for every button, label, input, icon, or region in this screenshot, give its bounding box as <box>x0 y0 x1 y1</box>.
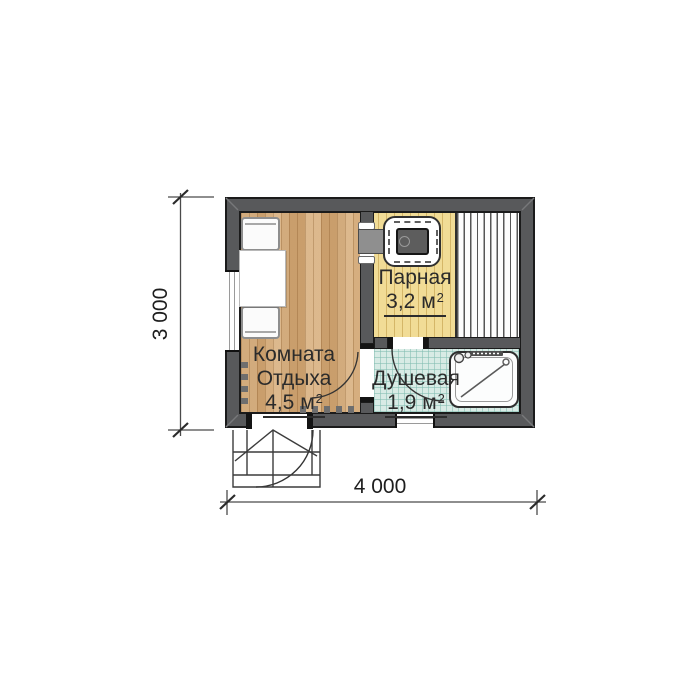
stove-vent-dashes <box>388 230 390 254</box>
dimension-width-label: 4 000 <box>330 476 430 498</box>
door-jamb <box>423 337 428 349</box>
square-superscript: 2 <box>316 391 323 406</box>
room-label-steam: Парная 3,2 м2 <box>345 266 485 317</box>
room-area: 1,9 м2 <box>346 391 486 418</box>
square-superscript: 2 <box>437 290 444 305</box>
area-value: 1,9 м2 <box>385 391 447 418</box>
door-opening-steam-shower <box>393 337 423 349</box>
bench-edge <box>245 331 276 333</box>
room-name-line: Душевая <box>346 367 486 391</box>
partition-wall-segment <box>428 337 521 349</box>
entrance-door-arc <box>256 430 313 487</box>
partition-wall-segment <box>374 337 388 349</box>
window-left <box>225 270 239 352</box>
room-area: 3,2 м2 <box>345 290 485 317</box>
area-value: 3,2 м2 <box>384 290 446 317</box>
entrance-steps <box>233 430 320 487</box>
table <box>239 250 286 307</box>
floor-plan-canvas: Комната Отдыха 4,5 м2 Парная 3,2 м2 Душе… <box>0 0 700 700</box>
room-name-line: Комната <box>219 343 369 367</box>
room-label-shower: Душевая 1,9 м2 <box>346 367 486 418</box>
bench-seat-top <box>241 217 280 251</box>
bench-edge <box>245 223 276 225</box>
stove-vent-dashes <box>394 261 431 263</box>
area-value: 4,5 м2 <box>263 391 325 418</box>
room-name-line: Парная <box>345 266 485 290</box>
square-superscript: 2 <box>438 391 445 406</box>
dimension-height-label: 3 000 <box>150 274 174 354</box>
stove-vent-dashes <box>394 221 431 223</box>
stove-wall-cap <box>358 256 375 264</box>
stove-burner-circle <box>399 236 410 247</box>
stove-vent-dashes <box>436 230 438 254</box>
bench-seat-bottom <box>241 306 280 339</box>
